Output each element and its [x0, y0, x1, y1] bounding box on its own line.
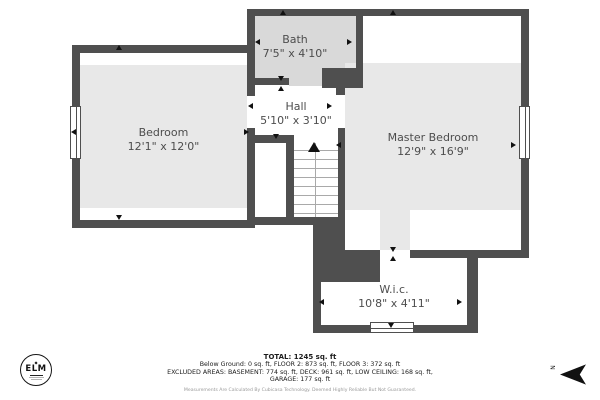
- dimension-arrow: [273, 134, 279, 139]
- wall: [313, 325, 372, 333]
- wall: [313, 250, 380, 282]
- stair-tread: [294, 213, 338, 214]
- logo-text: ELM: [25, 365, 46, 374]
- master-bedroom-label: Master Bedroom 12'9" x 16'9": [345, 131, 521, 158]
- dimension-arrow: [71, 129, 76, 135]
- room-name: Bath: [240, 33, 350, 47]
- dimension-arrow: [388, 323, 394, 328]
- total-line: TOTAL: 1245 sq. ft: [100, 353, 500, 361]
- room-name: Master Bedroom: [345, 131, 521, 145]
- wall: [336, 88, 345, 95]
- compass-arrow-icon: [560, 364, 586, 385]
- dimension-arrow: [278, 76, 284, 81]
- north-arrow: N: [556, 364, 584, 386]
- logo-tagline: [31, 379, 42, 380]
- dimension-arrow: [336, 142, 341, 148]
- stairs-up-arrow: [308, 142, 320, 152]
- floors-line: Below Ground: 0 sq. ft, FLOOR 2: 873 sq.…: [100, 361, 500, 369]
- stair-rail: [315, 143, 316, 217]
- dimension-arrow: [278, 86, 284, 91]
- wall: [72, 53, 80, 106]
- disclaimer: Measurements Are Calculated By Cubicasa …: [100, 388, 500, 394]
- elm-logo: ◆ ELM: [20, 354, 52, 386]
- floor-plan: Bedroom 12'1" x 12'0" Bath 7'5" x 4'10" …: [0, 0, 600, 400]
- north-label: N: [550, 365, 557, 370]
- room-dims: 10'8" x 4'11": [321, 297, 467, 311]
- wall: [521, 16, 529, 106]
- room-dims: 12'9" x 16'9": [345, 145, 521, 159]
- logo-rule: [30, 375, 43, 376]
- wall: [410, 250, 529, 258]
- wall: [247, 9, 529, 16]
- wall: [412, 325, 478, 333]
- logo-tagline: [29, 377, 44, 378]
- dimension-arrow: [390, 247, 396, 252]
- area-summary: TOTAL: 1245 sq. ft Below Ground: 0 sq. f…: [100, 353, 500, 394]
- dimension-arrow: [390, 256, 396, 261]
- bath-label: Bath 7'5" x 4'10": [240, 33, 350, 60]
- wall: [521, 159, 529, 258]
- wall: [313, 225, 345, 250]
- wic-label: W.i.c. 10'8" x 4'11": [321, 283, 467, 310]
- garage-line: GARAGE: 177 sq. ft: [100, 376, 500, 384]
- wall: [72, 159, 80, 228]
- stair-tread: [294, 195, 338, 196]
- stair-tread: [294, 186, 338, 187]
- wall: [247, 135, 294, 143]
- room-name: Bedroom: [80, 126, 247, 140]
- wall: [72, 45, 255, 53]
- bedroom-label: Bedroom 12'1" x 12'0": [80, 126, 247, 153]
- master-doorway-floor: [380, 210, 410, 250]
- dimension-arrow: [390, 10, 396, 15]
- room-dims: 5'10" x 3'10": [252, 114, 340, 128]
- room-dims: 7'5" x 4'10": [240, 47, 350, 61]
- wall: [255, 217, 345, 225]
- wall: [247, 128, 255, 228]
- room-name: Hall: [252, 100, 340, 114]
- stair-tread: [294, 168, 338, 169]
- stair-tread: [294, 159, 338, 160]
- wall: [322, 68, 363, 88]
- excluded-line: EXCLUDED AREAS: BASEMENT: 774 sq. ft, DE…: [100, 369, 500, 377]
- dimension-arrow: [116, 45, 122, 50]
- dimension-arrow: [116, 215, 122, 220]
- room-name: W.i.c.: [321, 283, 467, 297]
- room-dims: 12'1" x 12'0": [80, 140, 247, 154]
- wall: [286, 143, 294, 217]
- wall: [72, 220, 255, 228]
- bath-door-floor: [289, 79, 322, 86]
- hall-label: Hall 5'10" x 3'10": [252, 100, 340, 127]
- stair-tread: [294, 204, 338, 205]
- stair-tread: [294, 177, 338, 178]
- wall: [467, 258, 478, 325]
- dimension-arrow: [280, 10, 286, 15]
